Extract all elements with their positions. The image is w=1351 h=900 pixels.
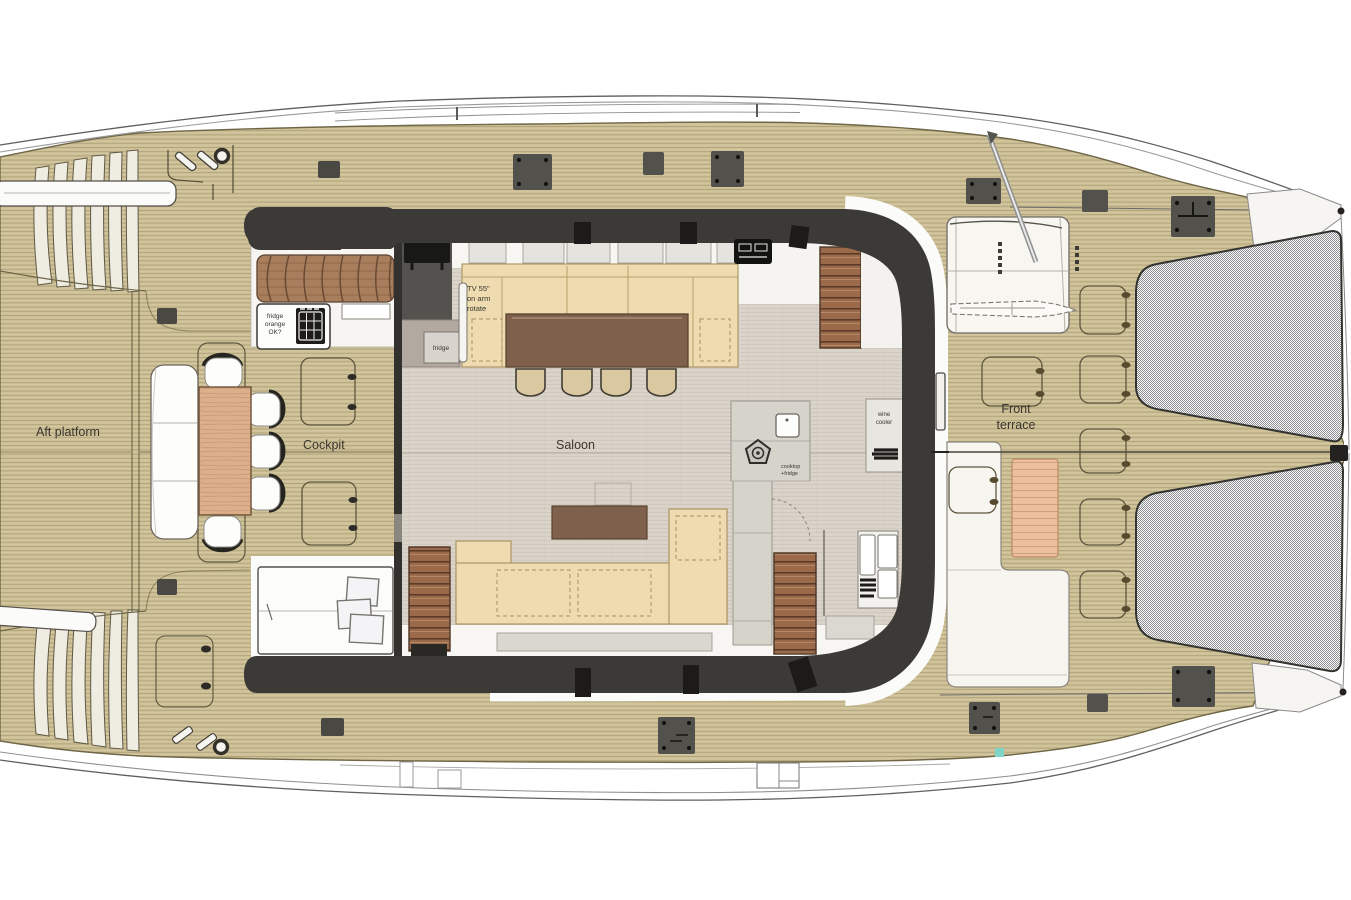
svg-text:Cockpit: Cockpit	[303, 438, 345, 452]
svg-text:TV 55": TV 55"	[467, 284, 490, 293]
svg-text:cooler: cooler	[876, 420, 892, 426]
svg-text:Aft platform: Aft platform	[36, 425, 100, 439]
svg-text:terrace: terrace	[997, 418, 1036, 432]
svg-text:Front: Front	[1001, 402, 1031, 416]
svg-text:wine: wine	[877, 412, 891, 418]
svg-text:OK?: OK?	[268, 329, 281, 336]
svg-text:fridge: fridge	[267, 313, 284, 320]
svg-text:orange: orange	[265, 321, 286, 328]
svg-text:+fridge: +fridge	[781, 471, 798, 477]
svg-text:on arm: on arm	[467, 294, 490, 303]
svg-text:cooktop: cooktop	[781, 464, 800, 470]
svg-text:Saloon: Saloon	[556, 438, 595, 452]
svg-text:rotate: rotate	[467, 304, 486, 313]
svg-text:fridge: fridge	[433, 345, 450, 352]
